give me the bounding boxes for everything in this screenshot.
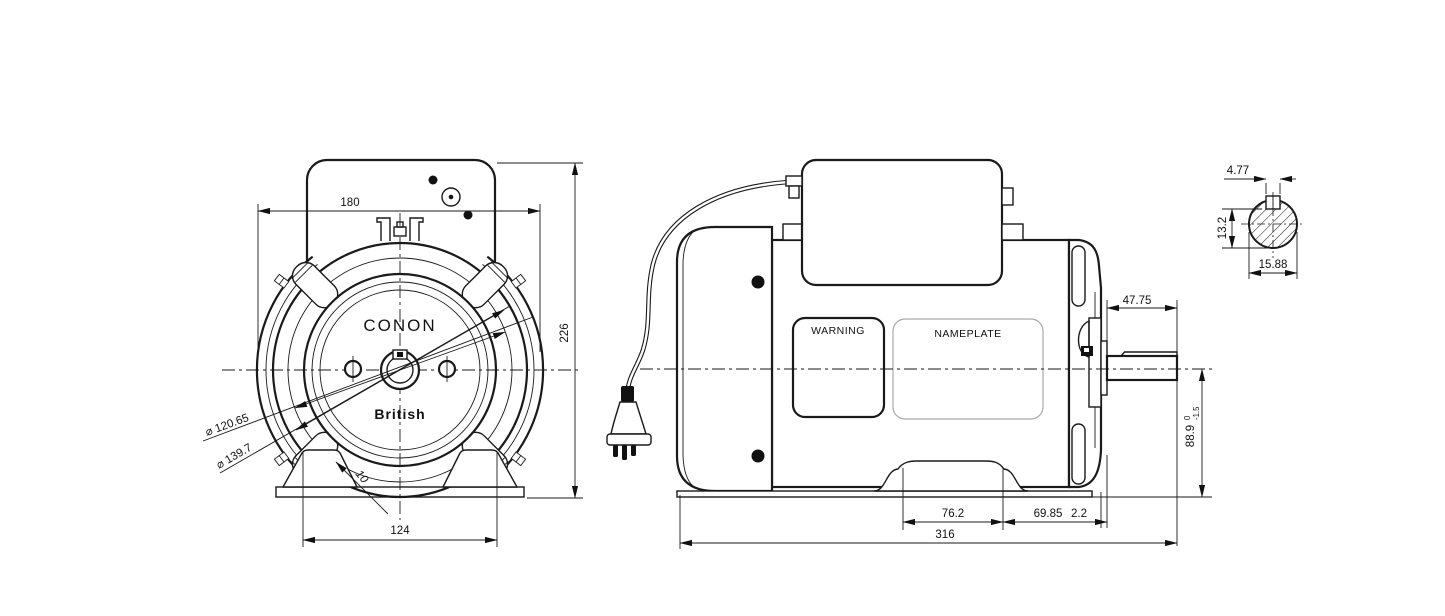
- shaft-side: [1107, 356, 1177, 380]
- engineering-drawing-canvas: CONON British ⌀ 120.65 ⌀ 139.7 10 180 22…: [0, 0, 1445, 616]
- dim-124-label: 124: [390, 525, 410, 537]
- dim-889-label-group: 88.9 0 -1.5: [1183, 406, 1201, 447]
- plug-body: [611, 402, 646, 434]
- dim-889-tol-lower: -1.5: [1192, 406, 1201, 420]
- clamp-tab: [274, 452, 288, 466]
- dim-1588-label: 15.88: [1259, 259, 1288, 271]
- key-front: [397, 352, 403, 357]
- terminal-box-side: [802, 160, 1002, 285]
- brand-text: CONON: [363, 316, 436, 335]
- shaft-section-detail: 4.77 13.2 15.88: [1217, 165, 1305, 279]
- bearing-hub: [1089, 318, 1101, 407]
- motor-drawing: CONON British ⌀ 120.65 ⌀ 139.7 10 180 22…: [0, 0, 1445, 616]
- clamp-tab: [511, 274, 525, 288]
- dim-6985-label: 69.85: [1034, 508, 1063, 520]
- dim-477-label: 4.77: [1227, 165, 1249, 177]
- terminal-box-tab: [1002, 224, 1023, 240]
- clamp-tab: [511, 452, 525, 466]
- dim-22-label: 2.2: [1071, 508, 1087, 520]
- side-view: WARNING NAMEPLATE 47.75 88.9 0: [607, 160, 1212, 549]
- base-plate-side: [677, 491, 1092, 497]
- plug-base: [607, 434, 651, 445]
- plug-pin: [622, 445, 627, 460]
- shaft-seal-notch: [1084, 348, 1089, 352]
- dim-180-label: 180: [340, 197, 359, 209]
- warning-label: WARNING: [811, 325, 865, 337]
- terminal-box-screw-icon: [464, 211, 473, 220]
- dim-889-label: 88.9: [1185, 425, 1197, 447]
- nameplate-label: NAMEPLATE: [934, 328, 1001, 340]
- end-bell-bolt: [752, 276, 765, 289]
- vent-slot-top: [1072, 246, 1085, 306]
- dim-316-label: 316: [935, 529, 954, 541]
- dim-762-label: 76.2: [942, 508, 964, 520]
- dia-bolt-circle-label: ⌀ 120.65: [204, 412, 251, 439]
- gland-boss-center: [449, 195, 454, 200]
- dim-226-label: 226: [559, 323, 571, 342]
- sub-brand-text: British: [374, 406, 425, 422]
- top-step: [783, 224, 803, 240]
- dim-889-tol-upper: 0: [1183, 415, 1192, 420]
- cable-gland-nut: [786, 176, 802, 186]
- dim-132-label: 13.2: [1217, 217, 1229, 239]
- terminal-box-tab: [1002, 188, 1013, 205]
- dim-4775-label: 47.75: [1123, 295, 1152, 307]
- cable-gland-body: [789, 186, 799, 198]
- front-view: CONON British ⌀ 120.65 ⌀ 139.7 10 180 22…: [203, 160, 583, 547]
- top-bracket-bolt: [394, 227, 406, 236]
- clamp-tab: [274, 274, 288, 288]
- plug-pin: [613, 445, 618, 457]
- end-bell-bolt: [752, 450, 765, 463]
- terminal-box-screw-icon: [429, 176, 438, 185]
- plug-pin: [631, 445, 636, 456]
- vent-slot-bottom: [1072, 424, 1085, 484]
- cable-strain-relief: [621, 386, 634, 402]
